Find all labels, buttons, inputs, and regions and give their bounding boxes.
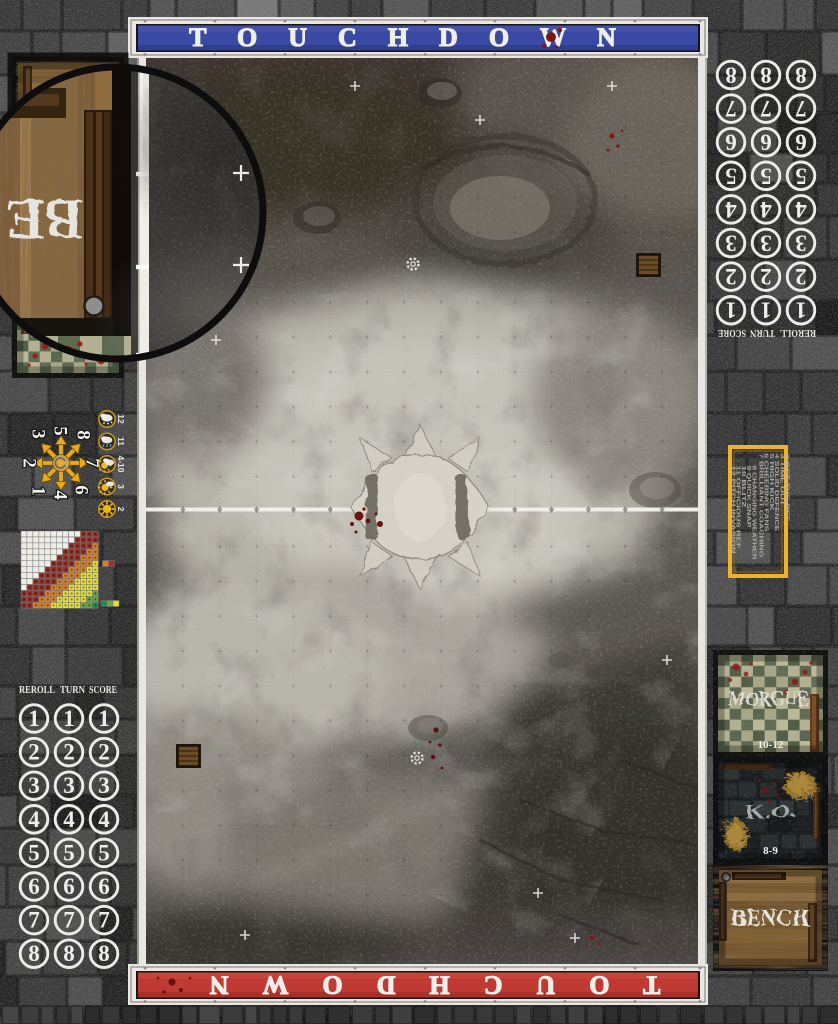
svg-text:1: 1	[98, 706, 110, 731]
svg-text:2: 2	[98, 740, 110, 765]
svg-text:BE: BE	[5, 187, 82, 252]
svg-text:10-12: 10-12	[758, 739, 784, 751]
svg-text:4: 4	[98, 807, 110, 832]
svg-text:5: 5	[50, 426, 71, 436]
svg-text:6: 6	[28, 874, 40, 899]
svg-text:3: 3	[116, 484, 126, 489]
svg-text:4: 4	[50, 490, 71, 500]
svg-text:5: 5	[725, 163, 737, 188]
svg-text:3: 3	[98, 773, 110, 798]
svg-text:1: 1	[63, 706, 75, 731]
svg-text:1: 1	[28, 486, 49, 496]
svg-text:1: 1	[28, 706, 40, 731]
svg-text:6: 6	[63, 874, 75, 899]
svg-text:3: 3	[760, 231, 772, 256]
svg-text:4: 4	[28, 807, 40, 832]
svg-text:REROLL: REROLL	[780, 327, 816, 339]
svg-text:SCORE: SCORE	[718, 327, 746, 339]
svg-text:5: 5	[28, 840, 40, 865]
svg-text:2: 2	[795, 264, 807, 289]
svg-text:4: 4	[760, 197, 772, 222]
svg-text:7: 7	[28, 908, 40, 933]
svg-text:3: 3	[28, 429, 49, 439]
svg-text:5: 5	[63, 840, 75, 865]
svg-text:6: 6	[725, 130, 737, 155]
svg-text:2: 2	[63, 740, 75, 765]
svg-text:7: 7	[795, 96, 807, 121]
svg-text:8: 8	[73, 430, 94, 440]
svg-text:6: 6	[795, 130, 807, 155]
svg-text:8: 8	[63, 941, 75, 966]
svg-text:6: 6	[98, 874, 110, 899]
svg-text:4: 4	[63, 807, 75, 832]
svg-text:3: 3	[725, 231, 737, 256]
svg-text:2: 2	[116, 507, 126, 512]
svg-text:7: 7	[98, 908, 110, 933]
svg-text:5: 5	[98, 840, 110, 865]
svg-text:5: 5	[795, 163, 807, 188]
svg-text:4-10: 4-10	[116, 455, 126, 472]
svg-text:3: 3	[28, 773, 40, 798]
svg-text:11: 11	[116, 437, 126, 446]
svg-text:8: 8	[725, 63, 737, 88]
svg-text:2: 2	[28, 740, 40, 765]
svg-text:7: 7	[63, 908, 75, 933]
svg-text:1: 1	[760, 298, 772, 323]
svg-text:SCORE: SCORE	[89, 684, 117, 696]
svg-text:8-9: 8-9	[763, 845, 778, 857]
svg-text:12: 12	[116, 414, 126, 424]
svg-text:TOUCHDOWN: TOUCHDOWN	[189, 23, 647, 52]
svg-text:7: 7	[760, 96, 772, 121]
svg-text:5: 5	[760, 163, 772, 188]
svg-text:K.O.: K.O.	[745, 802, 797, 823]
svg-text:7: 7	[725, 96, 737, 121]
svg-text:2: 2	[19, 458, 40, 468]
svg-text:4: 4	[795, 197, 807, 222]
svg-text:TOUCHDOWN: TOUCHDOWN	[176, 971, 661, 1000]
svg-text:8: 8	[760, 63, 772, 88]
svg-text:1: 1	[725, 298, 737, 323]
svg-text:TURN: TURN	[60, 684, 85, 696]
svg-text:2: 2	[725, 264, 737, 289]
svg-text:6: 6	[760, 130, 772, 155]
svg-text:7 BRILLIANT COACHING: 7 BRILLIANT COACHING	[758, 454, 764, 558]
svg-text:2: 2	[760, 264, 772, 289]
svg-text:8: 8	[795, 63, 807, 88]
svg-text:TURN: TURN	[750, 327, 775, 339]
svg-text:8: 8	[28, 941, 40, 966]
svg-text:4: 4	[725, 197, 737, 222]
svg-text:3: 3	[795, 231, 807, 256]
svg-text:6: 6	[71, 485, 92, 495]
svg-text:12 PITCH INVASION: 12 PITCH INVASION	[730, 466, 736, 554]
svg-text:REROLL: REROLL	[19, 684, 55, 696]
svg-text:BENCH: BENCH	[732, 906, 810, 932]
svg-text:1: 1	[795, 298, 807, 323]
svg-text:MORGUE: MORGUE	[729, 686, 809, 711]
svg-text:3: 3	[63, 773, 75, 798]
svg-text:8: 8	[98, 941, 110, 966]
